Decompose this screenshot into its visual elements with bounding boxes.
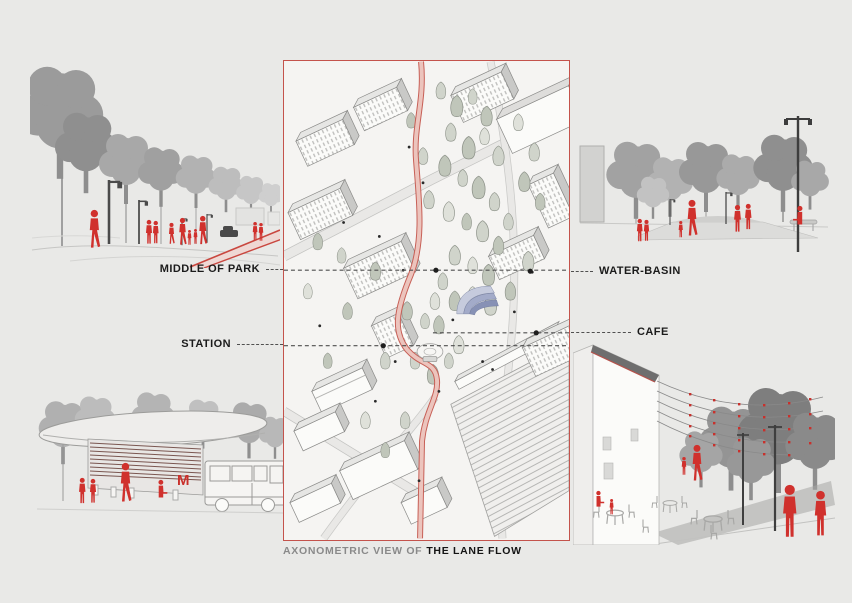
label-water-basin-text: WATER-BASIN	[599, 265, 681, 277]
caption: AXONOMETRIC VIEW OFTHE LANE FLOW	[283, 545, 522, 557]
car	[220, 226, 238, 237]
label-middle-of-park: MIDDLE OF PARK	[160, 263, 283, 275]
metro-m-icon: M	[177, 472, 190, 489]
leader-dash	[571, 271, 593, 272]
trees	[606, 135, 829, 224]
label-cafe-text: CAFE	[637, 326, 669, 338]
ground	[580, 216, 828, 240]
background-buildings	[236, 208, 280, 225]
building	[573, 345, 659, 545]
axonometric-masterplan	[284, 61, 569, 540]
label-water-basin: WATER-BASIN	[571, 265, 681, 277]
leader-dash	[571, 332, 631, 333]
bench	[790, 220, 817, 231]
vignette-cafe-courtyard	[573, 333, 835, 545]
label-station: STATION	[181, 338, 283, 350]
leader-dash	[237, 344, 283, 345]
background-building	[580, 146, 604, 222]
axonometric-frame	[283, 60, 570, 541]
caption-title: THE LANE FLOW	[426, 545, 521, 557]
presentation-board: { "board": { "background": "#e9e9e7", "a…	[0, 0, 852, 603]
label-cafe: CAFE	[571, 326, 669, 338]
caption-prefix: AXONOMETRIC VIEW OF	[283, 545, 422, 557]
leader-dash	[266, 269, 283, 270]
vignette-park-path	[578, 104, 830, 266]
vignette-metro-station: M	[33, 383, 288, 528]
ground-line	[37, 509, 283, 513]
ground	[648, 481, 835, 545]
vignette-park-street	[30, 60, 280, 268]
station-facade: M	[88, 439, 203, 495]
bus	[205, 461, 287, 512]
label-station-text: STATION	[181, 338, 231, 350]
label-middle-of-park-text: MIDDLE OF PARK	[160, 263, 260, 275]
